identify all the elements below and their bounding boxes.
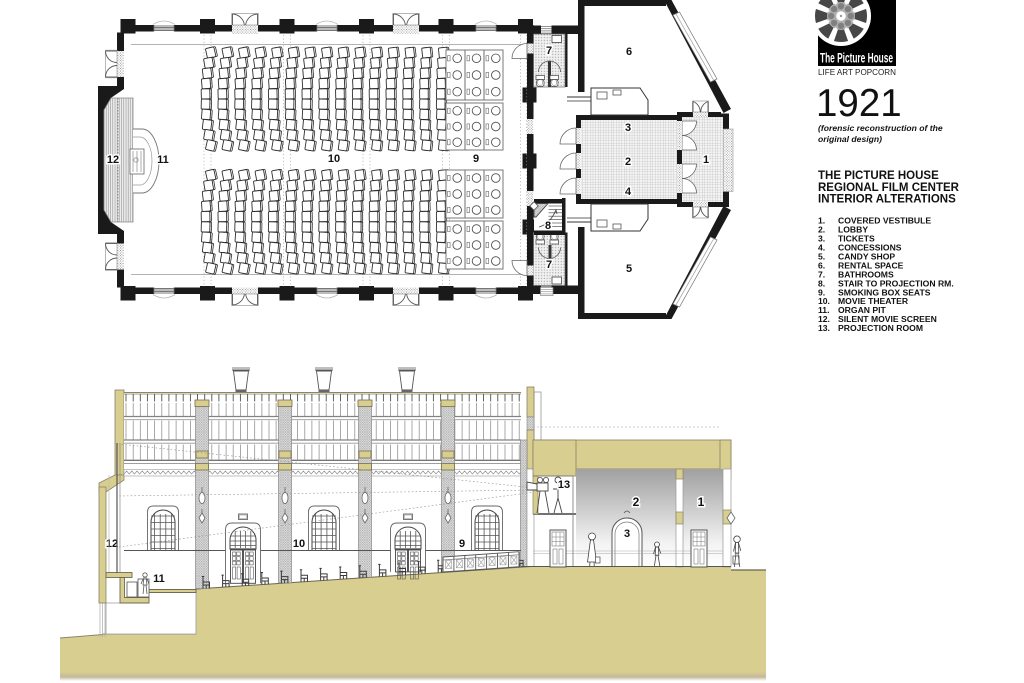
- svg-text:7: 7: [546, 45, 552, 57]
- svg-text:1: 1: [703, 154, 709, 166]
- svg-text:3: 3: [625, 122, 631, 134]
- svg-text:THE PICTURE HOUSE: THE PICTURE HOUSE: [818, 170, 939, 182]
- svg-text:13: 13: [558, 479, 570, 491]
- svg-text:6: 6: [626, 46, 632, 58]
- svg-text:9: 9: [473, 153, 479, 165]
- svg-text:(forensic reconstruction of th: (forensic reconstruction of the: [818, 123, 943, 133]
- svg-text:1921: 1921: [816, 82, 902, 125]
- svg-text:4: 4: [625, 186, 632, 198]
- svg-text:11: 11: [153, 573, 165, 585]
- svg-text:original design): original design): [818, 134, 882, 144]
- svg-text:12: 12: [106, 538, 118, 550]
- svg-text:8: 8: [545, 220, 551, 232]
- svg-text:The Picture House: The Picture House: [820, 51, 893, 66]
- svg-text:1: 1: [698, 495, 705, 509]
- svg-text:11: 11: [157, 154, 169, 166]
- svg-text:PROJECTION ROOM: PROJECTION ROOM: [838, 323, 923, 333]
- svg-text:13.: 13.: [818, 323, 830, 333]
- svg-text:LIFE ART POPCORN: LIFE ART POPCORN: [818, 68, 896, 77]
- svg-text:2: 2: [633, 495, 640, 509]
- svg-text:7: 7: [546, 259, 552, 271]
- svg-text:9: 9: [459, 538, 465, 550]
- svg-text:REGIONAL FILM CENTER: REGIONAL FILM CENTER: [818, 182, 960, 194]
- svg-text:3: 3: [624, 528, 630, 540]
- svg-text:INTERIOR ALTERATIONS: INTERIOR ALTERATIONS: [818, 194, 956, 206]
- svg-text:10: 10: [328, 153, 340, 165]
- svg-text:5: 5: [626, 263, 632, 275]
- svg-text:12: 12: [107, 154, 119, 166]
- svg-text:2: 2: [625, 156, 631, 168]
- svg-text:10: 10: [293, 538, 305, 550]
